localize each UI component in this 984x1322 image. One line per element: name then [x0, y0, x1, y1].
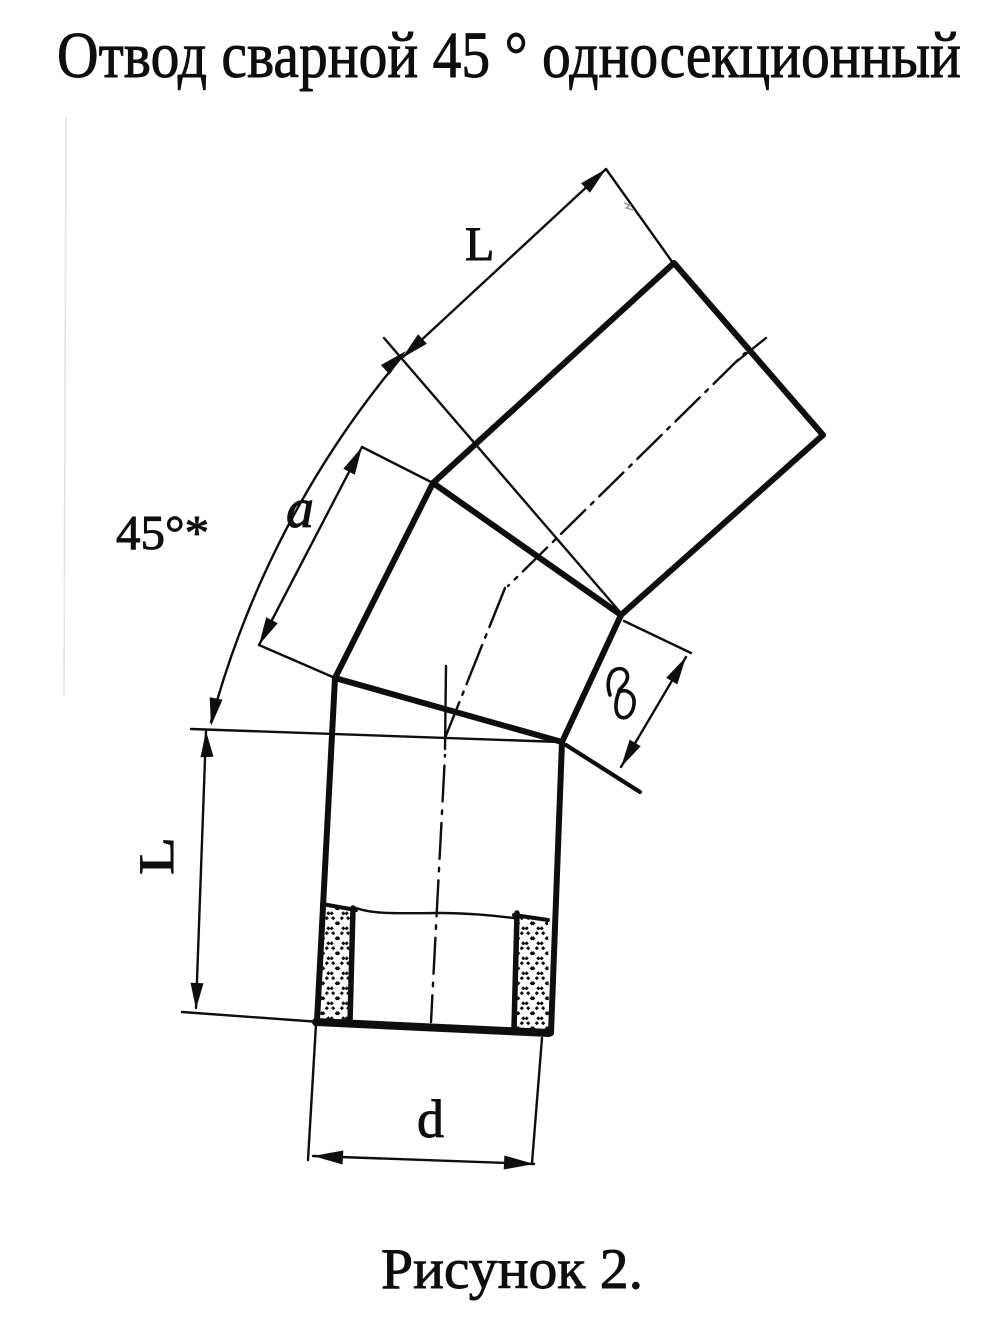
svg-text:d: d: [417, 1089, 444, 1149]
svg-text:45°*: 45°*: [116, 505, 209, 560]
svg-text:a: a: [286, 478, 314, 540]
svg-text:L: L: [465, 218, 494, 271]
svg-text:Рисунок 2.: Рисунок 2.: [381, 1238, 643, 1301]
svg-text:Отвод сварной 45 ° односекцион: Отвод сварной 45 ° односекционный: [57, 19, 961, 92]
svg-text:L: L: [130, 837, 185, 875]
